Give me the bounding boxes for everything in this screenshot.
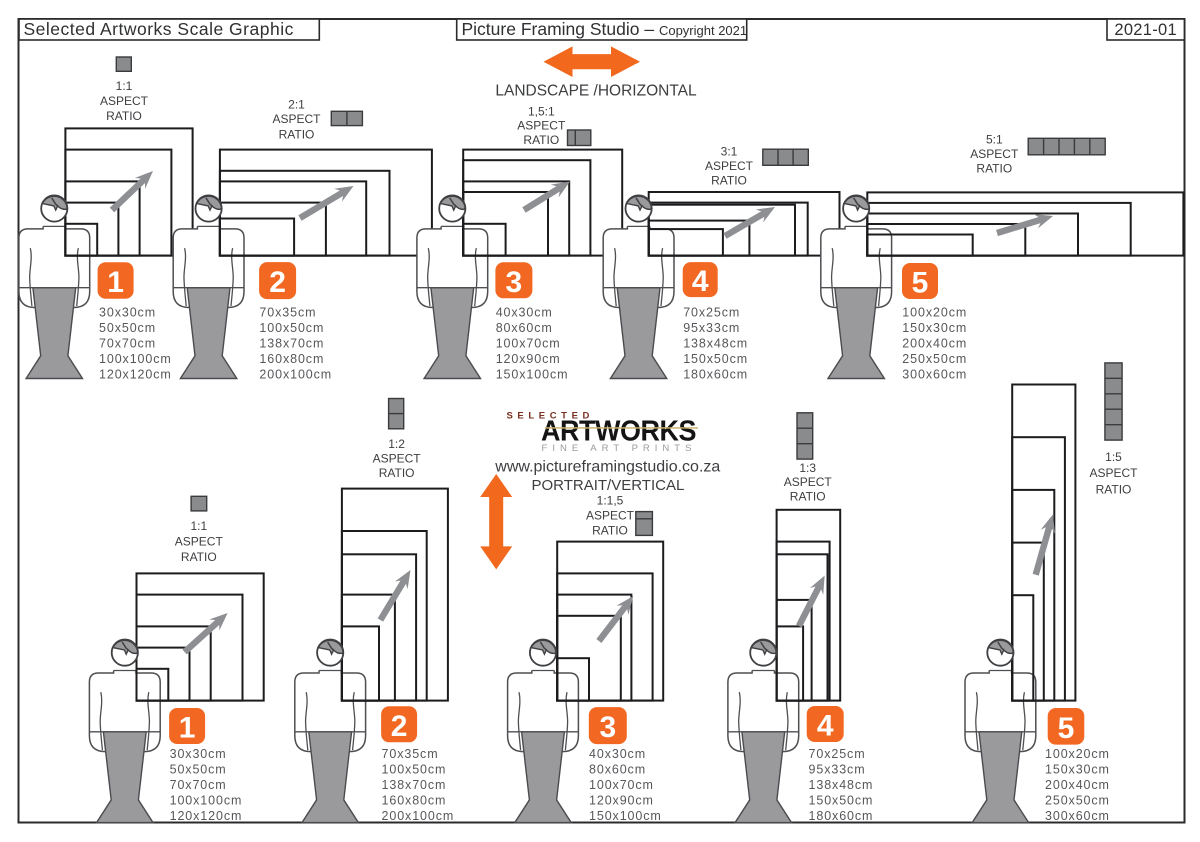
svg-text:3: 3 bbox=[599, 711, 616, 744]
svg-text:4: 4 bbox=[692, 265, 709, 298]
svg-text:5: 5 bbox=[1058, 712, 1075, 745]
svg-text:1:1: 1:1 bbox=[116, 79, 133, 93]
svg-text:70x70cm: 70x70cm bbox=[99, 336, 156, 350]
svg-text:200x40cm: 200x40cm bbox=[902, 336, 967, 350]
svg-text:1: 1 bbox=[107, 266, 124, 299]
svg-text:160x80cm: 160x80cm bbox=[382, 793, 447, 807]
svg-text:ASPECT: ASPECT bbox=[1089, 466, 1138, 480]
svg-text:30x30cm: 30x30cm bbox=[170, 747, 227, 761]
svg-text:1: 1 bbox=[179, 712, 196, 745]
svg-text:150x100cm: 150x100cm bbox=[496, 367, 569, 381]
svg-text:RATIO: RATIO bbox=[1096, 483, 1132, 497]
svg-text:RATIO: RATIO bbox=[379, 466, 415, 480]
svg-text:138x48cm: 138x48cm bbox=[683, 336, 748, 350]
svg-text:160x80cm: 160x80cm bbox=[259, 352, 324, 366]
svg-text:PORTRAIT/VERTICAL: PORTRAIT/VERTICAL bbox=[531, 477, 684, 494]
svg-text:2: 2 bbox=[391, 710, 408, 743]
svg-text:70x25cm: 70x25cm bbox=[809, 747, 866, 761]
svg-text:RATIO: RATIO bbox=[523, 133, 559, 147]
svg-text:www.pictureframingstudio.co.za: www.pictureframingstudio.co.za bbox=[494, 459, 720, 476]
svg-text:ASPECT: ASPECT bbox=[517, 119, 566, 133]
svg-text:100x20cm: 100x20cm bbox=[902, 305, 967, 319]
svg-text:120x120cm: 120x120cm bbox=[170, 809, 243, 823]
svg-text:1:5: 1:5 bbox=[1105, 450, 1122, 464]
svg-text:138x48cm: 138x48cm bbox=[809, 778, 874, 792]
svg-text:250x50cm: 250x50cm bbox=[1045, 793, 1110, 807]
svg-text:2021-01: 2021-01 bbox=[1114, 21, 1177, 39]
svg-text:ASPECT: ASPECT bbox=[175, 534, 224, 548]
svg-text:1:1,5: 1:1,5 bbox=[597, 494, 624, 508]
svg-text:FINE ART PRINTS: FINE ART PRINTS bbox=[542, 443, 697, 454]
svg-text:5:1: 5:1 bbox=[986, 133, 1003, 147]
svg-text:138x70cm: 138x70cm bbox=[382, 778, 447, 792]
svg-text:100x50cm: 100x50cm bbox=[259, 321, 324, 335]
svg-text:180x60cm: 180x60cm bbox=[683, 367, 748, 381]
svg-text:50x50cm: 50x50cm bbox=[170, 762, 227, 776]
svg-text:ASPECT: ASPECT bbox=[373, 452, 422, 466]
svg-text:50x50cm: 50x50cm bbox=[99, 321, 156, 335]
svg-text:150x30cm: 150x30cm bbox=[1045, 762, 1110, 776]
svg-text:120x120cm: 120x120cm bbox=[99, 367, 172, 381]
svg-text:100x100cm: 100x100cm bbox=[99, 352, 172, 366]
svg-text:4: 4 bbox=[817, 710, 834, 743]
svg-text:RATIO: RATIO bbox=[711, 173, 747, 187]
svg-text:120x90cm: 120x90cm bbox=[589, 793, 654, 807]
svg-text:1:2: 1:2 bbox=[388, 437, 405, 451]
svg-text:300x60cm: 300x60cm bbox=[902, 367, 967, 381]
svg-text:40x30cm: 40x30cm bbox=[496, 305, 553, 319]
svg-text:1:1: 1:1 bbox=[190, 519, 207, 533]
svg-text:80x60cm: 80x60cm bbox=[496, 321, 553, 335]
svg-text:ASPECT: ASPECT bbox=[100, 94, 149, 108]
svg-text:1:3: 1:3 bbox=[799, 461, 816, 475]
svg-text:5: 5 bbox=[912, 267, 929, 300]
svg-text:30x30cm: 30x30cm bbox=[99, 305, 156, 319]
svg-text:138x70cm: 138x70cm bbox=[259, 336, 324, 350]
svg-text:RATIO: RATIO bbox=[976, 162, 1012, 176]
svg-text:40x30cm: 40x30cm bbox=[589, 747, 646, 761]
svg-text:100x100cm: 100x100cm bbox=[170, 793, 243, 807]
svg-text:100x20cm: 100x20cm bbox=[1045, 747, 1110, 761]
svg-text:ASPECT: ASPECT bbox=[705, 159, 754, 173]
svg-text:ASPECT: ASPECT bbox=[970, 147, 1019, 161]
svg-text:100x70cm: 100x70cm bbox=[496, 336, 561, 350]
svg-text:RATIO: RATIO bbox=[790, 490, 826, 504]
svg-text:95x33cm: 95x33cm bbox=[809, 762, 866, 776]
svg-text:2:1: 2:1 bbox=[288, 98, 305, 112]
svg-text:ASPECT: ASPECT bbox=[784, 475, 833, 489]
svg-text:1,5:1: 1,5:1 bbox=[528, 104, 555, 118]
svg-text:2: 2 bbox=[269, 266, 286, 299]
svg-text:95x33cm: 95x33cm bbox=[683, 321, 740, 335]
svg-text:120x90cm: 120x90cm bbox=[496, 352, 561, 366]
svg-text:RATIO: RATIO bbox=[181, 550, 217, 564]
svg-text:RATIO: RATIO bbox=[592, 523, 628, 537]
svg-text:70x25cm: 70x25cm bbox=[683, 305, 740, 319]
svg-text:100x70cm: 100x70cm bbox=[589, 778, 654, 792]
svg-text:Selected Artworks Scale Graphi: Selected Artworks Scale Graphic bbox=[24, 19, 294, 39]
svg-text:100x50cm: 100x50cm bbox=[382, 762, 447, 776]
svg-text:70x70cm: 70x70cm bbox=[170, 778, 227, 792]
svg-text:150x50cm: 150x50cm bbox=[809, 793, 874, 807]
svg-text:RATIO: RATIO bbox=[106, 109, 142, 123]
svg-text:3: 3 bbox=[506, 266, 523, 299]
svg-text:LANDSCAPE /HORIZONTAL: LANDSCAPE /HORIZONTAL bbox=[495, 83, 697, 100]
svg-text:200x100cm: 200x100cm bbox=[259, 367, 332, 381]
svg-text:180x60cm: 180x60cm bbox=[809, 809, 874, 823]
svg-text:3:1: 3:1 bbox=[721, 145, 738, 159]
svg-text:70x35cm: 70x35cm bbox=[259, 305, 316, 319]
svg-text:70x35cm: 70x35cm bbox=[382, 747, 439, 761]
svg-text:300x60cm: 300x60cm bbox=[1045, 809, 1110, 823]
svg-text:150x100cm: 150x100cm bbox=[589, 809, 662, 823]
svg-text:250x50cm: 250x50cm bbox=[902, 352, 967, 366]
svg-text:ASPECT: ASPECT bbox=[586, 509, 635, 523]
svg-text:RATIO: RATIO bbox=[279, 128, 315, 142]
svg-text:150x50cm: 150x50cm bbox=[683, 352, 748, 366]
svg-text:ASPECT: ASPECT bbox=[272, 112, 321, 126]
svg-text:200x40cm: 200x40cm bbox=[1045, 778, 1110, 792]
svg-text:200x100cm: 200x100cm bbox=[382, 809, 455, 823]
svg-text:80x60cm: 80x60cm bbox=[589, 762, 646, 776]
svg-text:150x30cm: 150x30cm bbox=[902, 321, 967, 335]
